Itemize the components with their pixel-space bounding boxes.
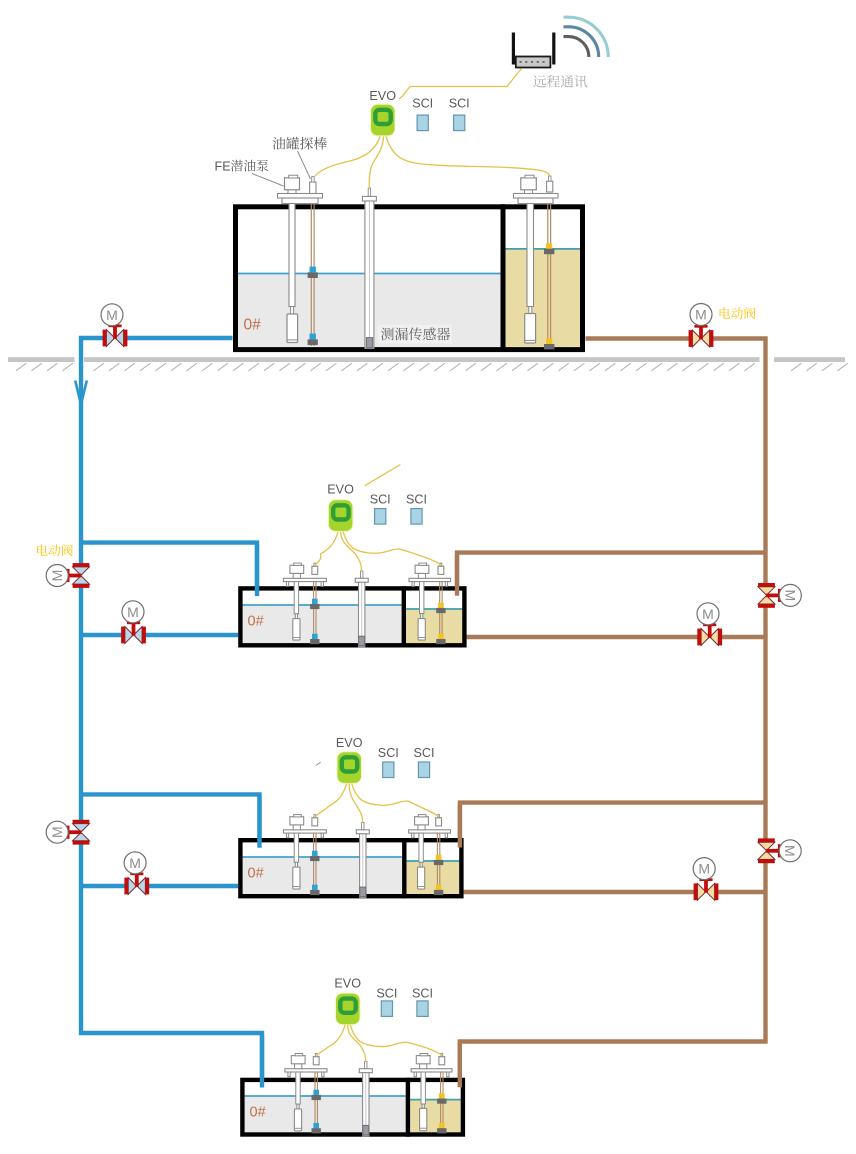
svg-text:M: M (782, 590, 798, 602)
svg-text:SCI: SCI (412, 987, 433, 1001)
svg-text:0#: 0# (244, 317, 262, 334)
svg-text:SCI: SCI (449, 97, 470, 111)
svg-text:SCI: SCI (412, 97, 433, 111)
svg-text:EVO: EVO (336, 736, 363, 750)
svg-text:M: M (695, 307, 707, 323)
svg-text:M: M (702, 606, 714, 622)
svg-text:M: M (49, 826, 65, 838)
svg-text:0#: 0# (248, 614, 264, 630)
svg-text:M: M (698, 861, 710, 877)
svg-text:SCI: SCI (414, 746, 435, 760)
svg-text:M: M (106, 307, 118, 323)
svg-text:M: M (129, 855, 141, 871)
svg-text:SCI: SCI (378, 746, 399, 760)
svg-text:0#: 0# (250, 1105, 266, 1121)
svg-text:0#: 0# (248, 866, 264, 882)
svg-text:SCI: SCI (370, 493, 391, 507)
svg-text:EVO: EVO (327, 483, 354, 497)
svg-text:FE: FE (215, 160, 231, 174)
svg-text:M: M (782, 845, 798, 857)
svg-text:EVO: EVO (334, 977, 361, 991)
svg-text:EVO: EVO (369, 89, 396, 103)
svg-text:SCI: SCI (406, 493, 427, 507)
svg-text:M: M (49, 570, 65, 582)
svg-text:SCI: SCI (376, 987, 397, 1001)
svg-text:M: M (127, 604, 139, 620)
